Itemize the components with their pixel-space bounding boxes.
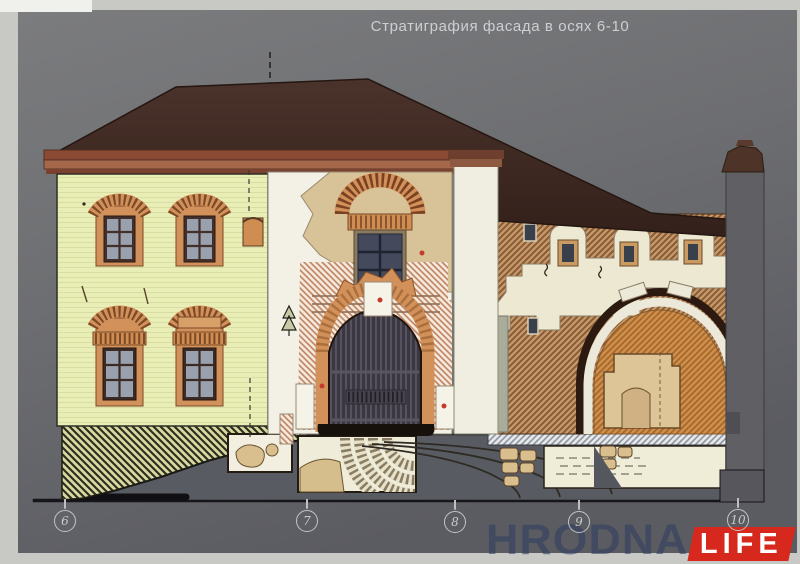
projected-slide-photo: Стратиграфия фасада в осях 6-10 6 7 8 9 …	[0, 0, 800, 564]
photo-glare	[0, 0, 92, 12]
pylon-section	[720, 140, 764, 502]
axis-label-8: 8	[444, 500, 466, 533]
corner-pilaster	[448, 150, 504, 434]
window-lower-left	[93, 312, 146, 406]
axis-label-6: 6	[54, 499, 76, 532]
axis-tick	[64, 499, 66, 508]
watermark-life-badge: LIFE	[687, 527, 795, 561]
building-right	[470, 214, 740, 434]
window-upper-right	[173, 200, 226, 266]
facade-drawing	[0, 0, 800, 564]
wall-slot	[528, 318, 538, 334]
axis-label-9: 9	[568, 500, 590, 533]
plaque	[178, 317, 221, 328]
axis-label-10: 10	[727, 498, 749, 531]
axis-label-7: 7	[296, 499, 318, 532]
page-title: Стратиграфия фасада в осях 6-10	[250, 18, 750, 35]
window-upper-left	[93, 200, 146, 266]
cornice-band	[44, 150, 468, 174]
gate-base	[318, 424, 435, 436]
wall-slot	[524, 224, 536, 241]
building-left	[57, 170, 268, 438]
niche	[243, 218, 263, 246]
